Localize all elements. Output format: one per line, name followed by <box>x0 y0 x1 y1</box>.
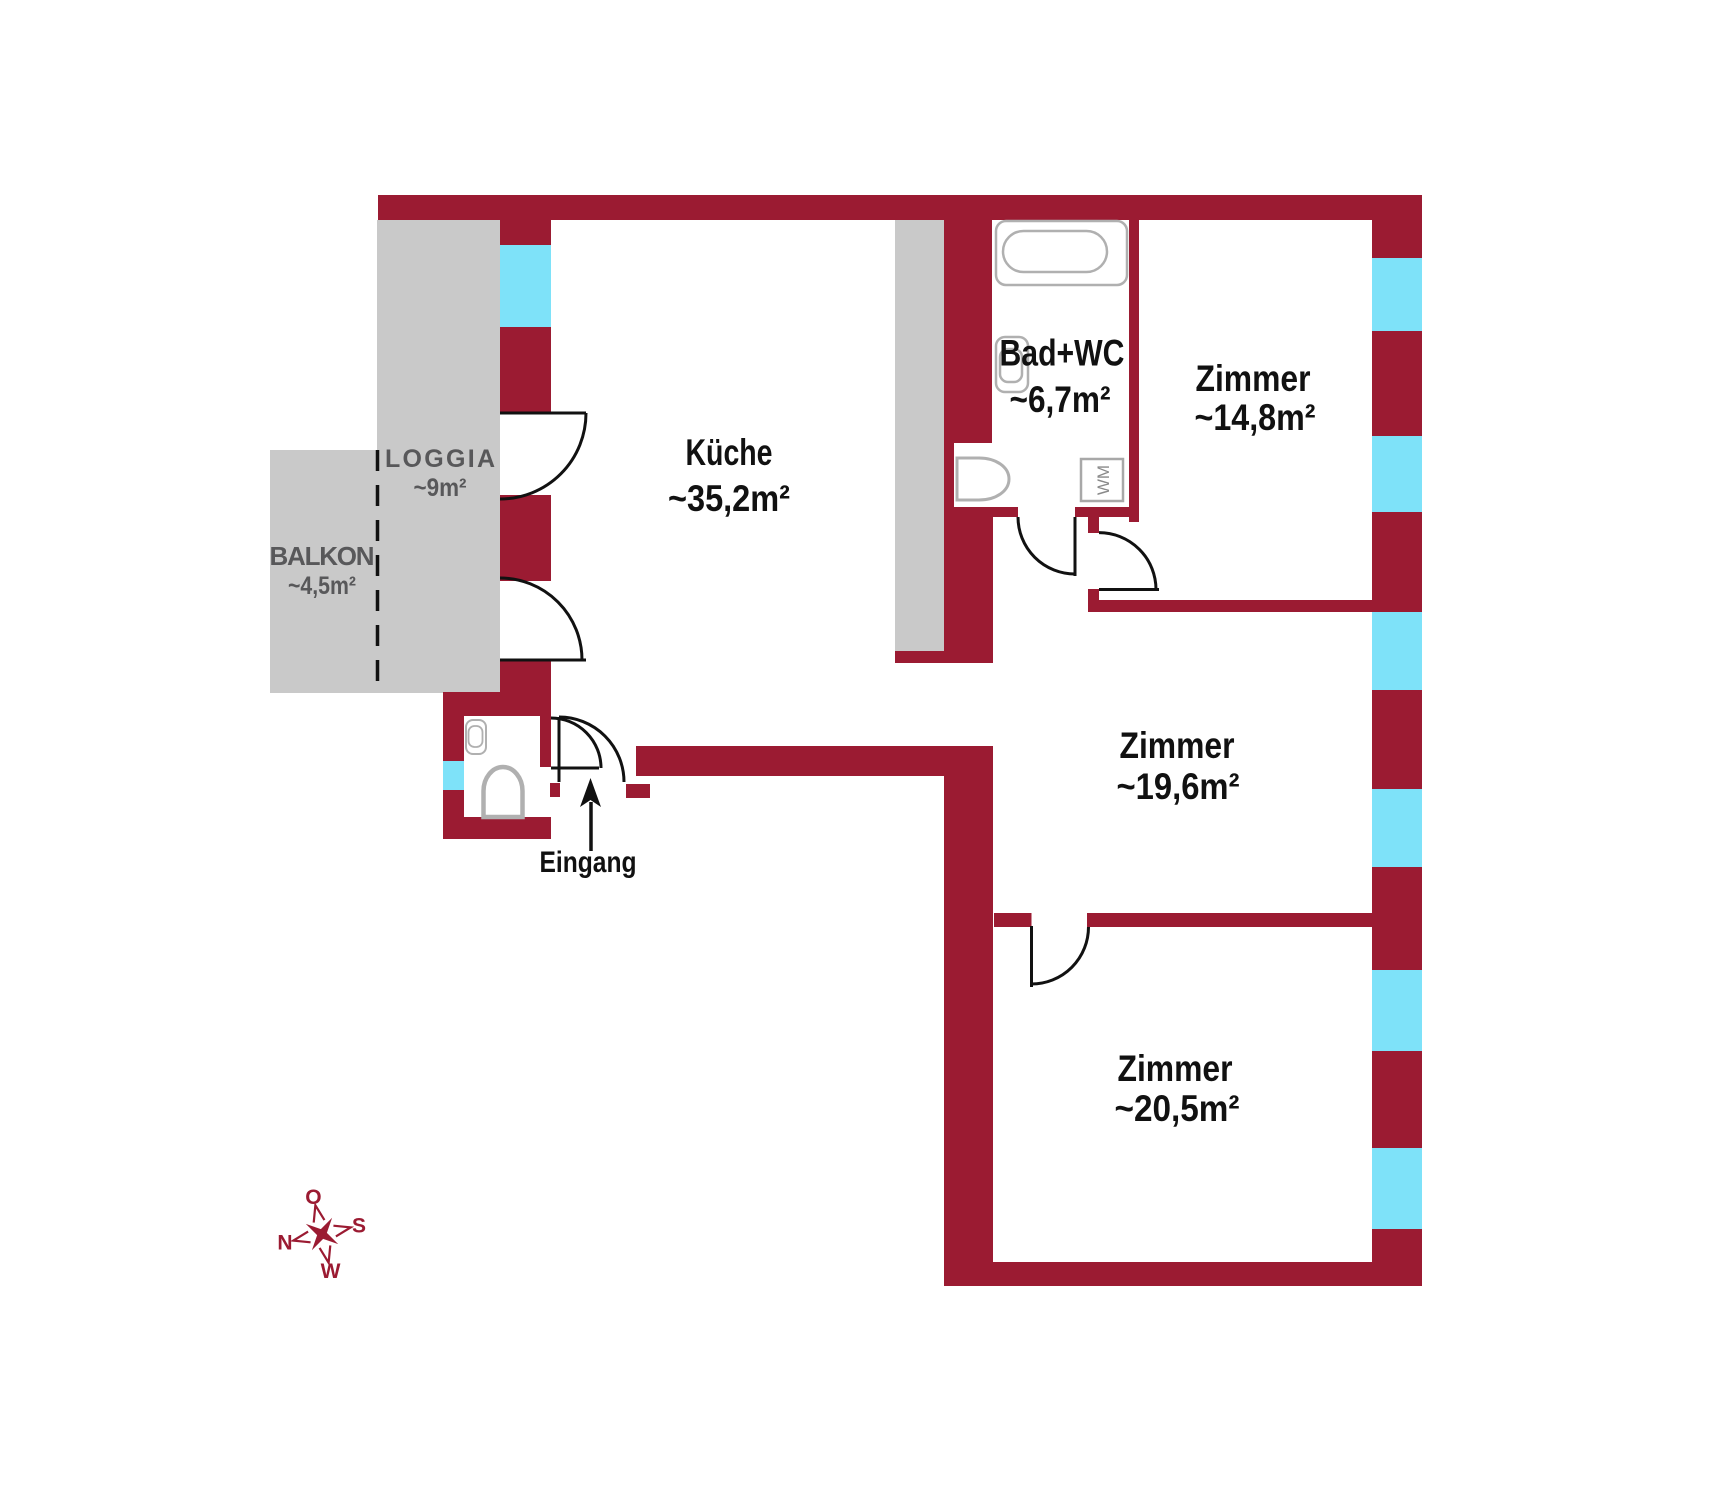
svg-text:WM: WM <box>1094 465 1113 495</box>
svg-text:Bad+WC: Bad+WC <box>1000 333 1125 374</box>
svg-text:W: W <box>321 1260 341 1283</box>
svg-text:~20,5m²: ~20,5m² <box>1115 1088 1240 1129</box>
svg-text:Eingang: Eingang <box>540 846 637 879</box>
svg-text:BALKON: BALKON <box>270 541 375 571</box>
svg-text:S: S <box>352 1214 366 1237</box>
svg-text:~6,7m²: ~6,7m² <box>1010 379 1111 420</box>
svg-text:Zimmer: Zimmer <box>1120 725 1235 766</box>
svg-text:~9m²: ~9m² <box>414 474 467 502</box>
svg-text:~14,8m²: ~14,8m² <box>1195 397 1316 438</box>
svg-text:N: N <box>277 1232 292 1255</box>
svg-text:~19,6m²: ~19,6m² <box>1117 766 1240 807</box>
svg-text:Zimmer: Zimmer <box>1118 1048 1233 1089</box>
svg-text:Küche: Küche <box>686 432 773 473</box>
svg-text:O: O <box>305 1186 321 1209</box>
svg-text:~4,5m²: ~4,5m² <box>288 572 356 600</box>
svg-text:~35,2m²: ~35,2m² <box>668 478 790 519</box>
svg-text:Zimmer: Zimmer <box>1196 358 1311 399</box>
